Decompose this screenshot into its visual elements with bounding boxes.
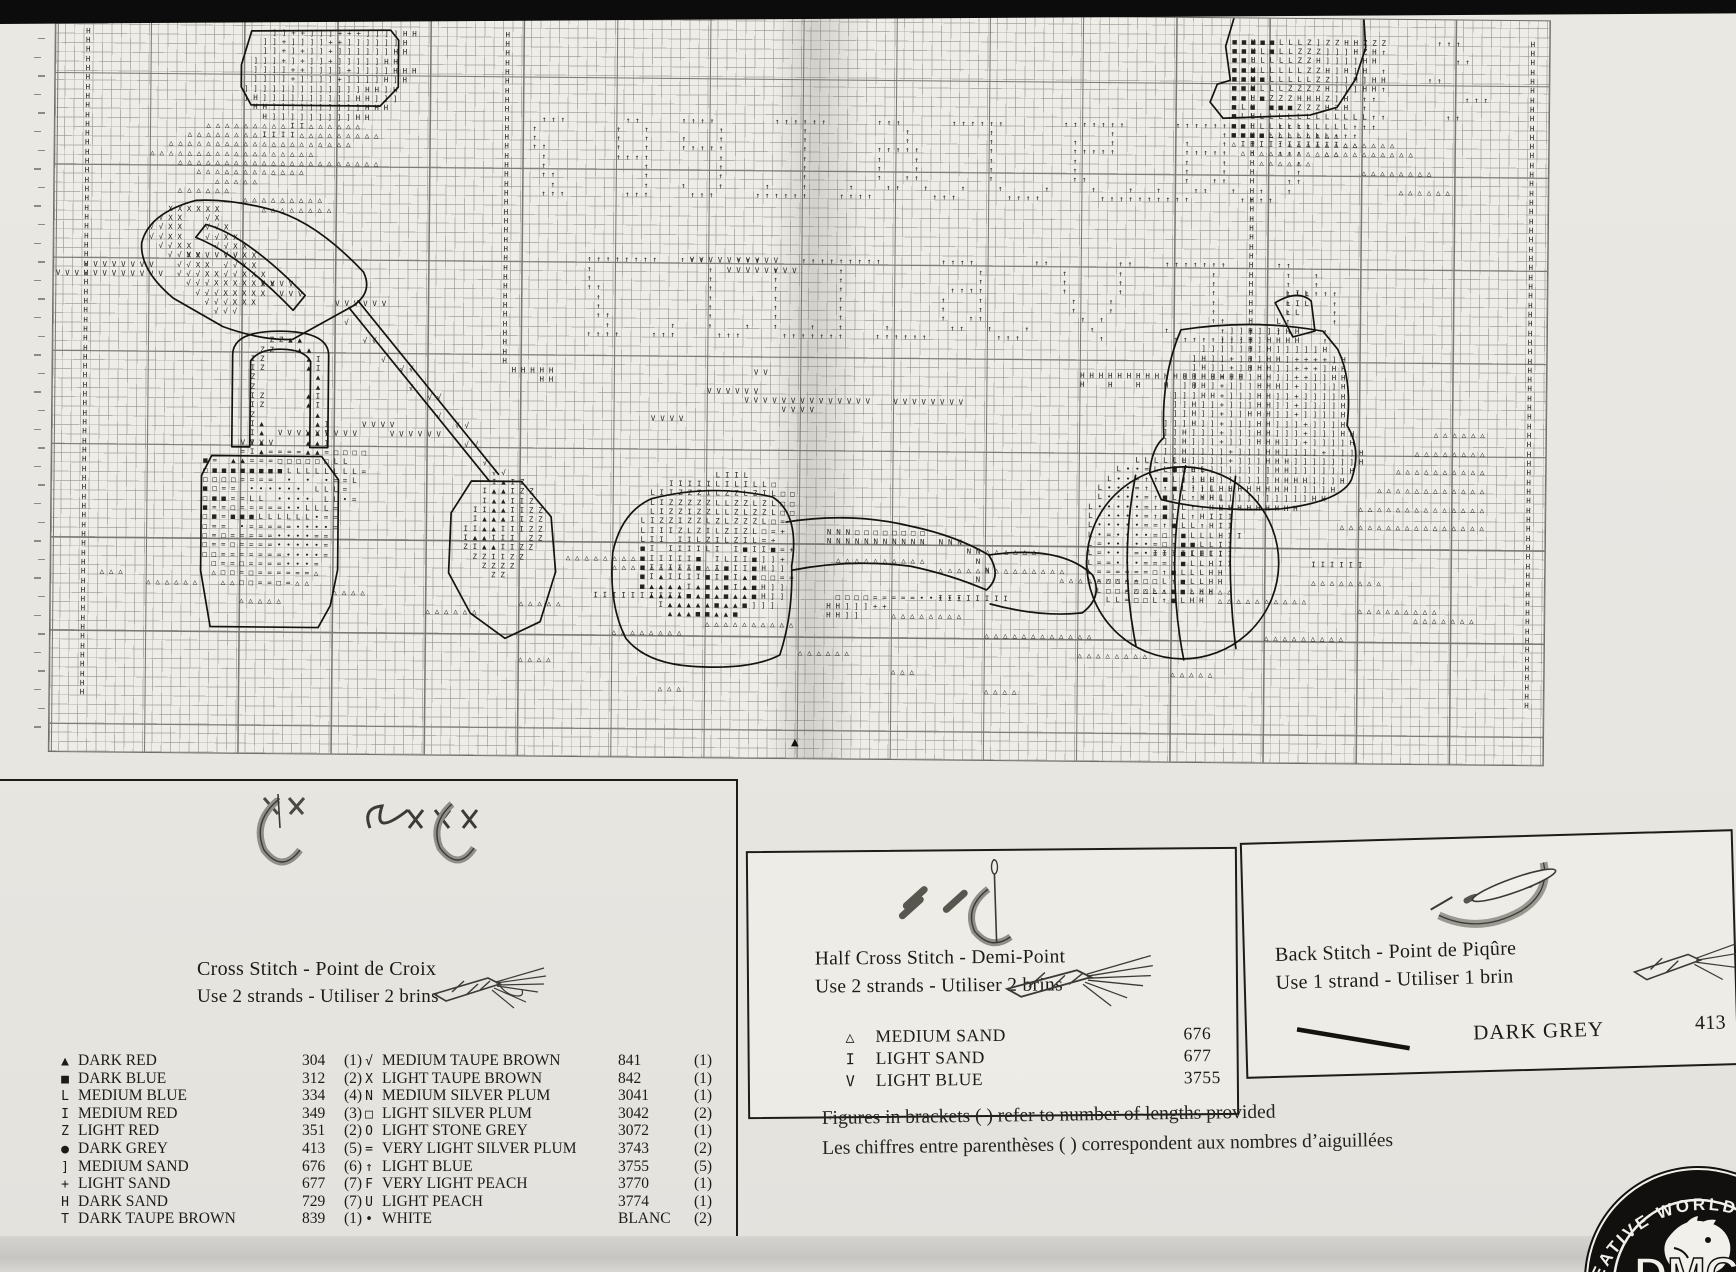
color-code: BLANC [618,1210,671,1228]
color-symbol: F [356,1177,382,1192]
color-name: VERY LIGHT SILVER PLUM [382,1140,576,1158]
color-code: 841 [618,1052,641,1070]
color-key-row: FVERY LIGHT PEACH3770(1) [356,1175,528,1193]
color-count: (2) [694,1140,712,1158]
color-name: DARK TAUPE BROWN [78,1210,236,1228]
color-name: MEDIUM RED [78,1105,177,1123]
color-symbol: Z [52,1124,78,1139]
color-code: 3072 [618,1122,649,1140]
color-count: (2) [694,1210,712,1228]
cross-stitch-box-border-right [736,779,738,1272]
color-symbol: H [52,1195,78,1210]
color-symbol: △ [845,1028,875,1046]
color-symbol: N [356,1089,382,1104]
color-code: 3041 [618,1087,649,1105]
back-stitch-title: Back Stitch - Point de Piqûre [1275,937,1517,967]
color-name: MEDIUM BLUE [78,1087,187,1105]
color-code: 334 [302,1087,325,1105]
color-name: MEDIUM SAND [78,1158,189,1176]
color-name: LIGHT SAND [78,1175,170,1193]
color-symbol: ↑ [356,1160,382,1175]
color-name: LIGHT SAND [876,1047,985,1068]
color-key-row: ■DARK BLUE312(2) [52,1070,166,1088]
color-key-row: TDARK TAUPE BROWN839(1) [52,1210,236,1228]
center-marker-icon: ▲ [791,738,799,748]
scanned-pattern-page: ]]++]]]+++]]]]HH]]+]]]]++]]]]]]H]]+]+]]+… [0,0,1736,1272]
cross-stitch-box-border-top [0,779,738,781]
color-code: 842 [618,1070,641,1088]
half-cross-color-row: △MEDIUM SAND676 [845,1025,1006,1047]
color-code: 729 [302,1193,325,1211]
floss-skein-icon [430,966,550,1028]
color-name: LIGHT SILVER PLUM [382,1105,532,1123]
bracket-notes: Figures in brackets ( ) refer to number … [822,1100,1394,1168]
color-code: 677 [302,1175,325,1193]
color-symbol: I [846,1050,876,1068]
color-code: 676 [302,1158,325,1176]
color-key-row: •WHITEBLANC(2) [356,1210,432,1228]
color-key-row: ULIGHT PEACH3774(1) [356,1193,483,1211]
half-cross-color-row: VLIGHT BLUE3755 [846,1069,983,1091]
color-code: 3755 [618,1158,649,1176]
color-count: (1) [694,1193,712,1211]
color-symbol: ] [52,1160,78,1175]
color-key-row: =VERY LIGHT SILVER PLUM3743(2) [356,1140,576,1158]
color-code: 3770 [618,1175,649,1193]
color-symbol: ● [52,1142,78,1157]
color-symbol: O [356,1124,382,1139]
color-name: VERY LIGHT PEACH [382,1175,528,1193]
color-code: 3042 [618,1105,649,1123]
backstitch-layer [49,7,1547,759]
color-name: DARK RED [78,1052,157,1070]
half-cross-needle-icon [898,857,1049,950]
color-code: 349 [302,1105,325,1123]
color-symbol: T [52,1212,78,1227]
color-key-row: XLIGHT TAUPE BROWN842(1) [356,1070,542,1088]
back-stitch-box: Back Stitch - Point de Piqûre Use 1 stra… [1240,829,1736,1079]
color-key-row: OLIGHT STONE GREY3072(1) [356,1122,528,1140]
color-key-row: ▲DARK RED304(1) [52,1052,157,1070]
color-key-row: NMEDIUM SILVER PLUM3041(1) [356,1087,550,1105]
color-code: 676 [1183,1023,1211,1044]
color-symbol: L [52,1089,78,1104]
color-symbol: • [356,1212,382,1227]
color-name: MEDIUM SAND [875,1025,1006,1046]
color-symbol: ▲ [52,1054,78,1069]
color-key-row: ●DARK GREY413(5) [52,1140,168,1158]
back-stitch-color-name: DARK GREY [1473,1017,1605,1046]
color-name: LIGHT PEACH [382,1193,483,1211]
color-symbol: I [52,1107,78,1122]
color-key-row: +LIGHT SAND677(7) [52,1175,170,1193]
color-key-row: IMEDIUM RED349(3) [52,1105,177,1123]
color-key-row: □LIGHT SILVER PLUM3042(2) [356,1105,532,1123]
cross-stitch-chart: ]]++]]]+++]]]]HH]]+]]]]++]]]]]]H]]+]+]]+… [48,6,1551,766]
color-name: DARK BLUE [78,1070,166,1088]
color-name: MEDIUM SILVER PLUM [382,1087,550,1105]
color-key-row: √MEDIUM TAUPE BROWN841(1) [356,1052,560,1070]
color-code: 3755 [1184,1067,1221,1088]
color-name: MEDIUM TAUPE BROWN [382,1052,560,1070]
color-code: 413 [302,1140,325,1158]
cross-stitch-title: Cross Stitch - Point de Croix [197,958,436,981]
floss-skein-icon [999,952,1160,1021]
scanner-edge-strip [0,1236,1736,1272]
color-symbol: X [356,1072,382,1087]
floss-skein-icon [1630,939,1736,1012]
dmc-logo: CREATIVE WORLD DMC [1556,1152,1736,1272]
color-name: LIGHT RED [78,1122,159,1140]
color-code: 312 [302,1070,325,1088]
color-symbol: = [356,1142,382,1157]
color-symbol: √ [356,1054,382,1069]
color-name: LIGHT TAUPE BROWN [382,1070,542,1088]
color-symbol: □ [356,1107,382,1122]
color-code: 351 [302,1122,325,1140]
color-name: LIGHT BLUE [876,1069,983,1090]
color-name: LIGHT BLUE [382,1158,473,1176]
half-cross-stitch-box: Half Cross Stitch - Demi-Point Use 2 str… [746,847,1239,1119]
color-code: 304 [302,1052,325,1070]
color-key-row: HDARK SAND729(7) [52,1193,168,1211]
color-code: 3743 [618,1140,649,1158]
color-symbol: ■ [52,1072,78,1087]
color-count: (1) [694,1122,712,1140]
dmc-logo-text: DMC [1634,1248,1736,1272]
back-stitch-color-code: 413 [1695,1011,1727,1035]
back-stitch-subtitle: Use 1 strand - Utiliser 1 brin [1275,965,1513,995]
color-code: 677 [1184,1045,1212,1066]
color-symbol: V [846,1072,876,1090]
color-count: (1) [694,1052,712,1070]
back-stitch-line-sample [1291,1018,1422,1058]
color-count: (1) [694,1087,712,1105]
bracket-note-fr: Les chiffres entre parenthèses ( ) corre… [822,1130,1393,1160]
color-count: (1) [694,1070,712,1088]
back-stitch-needle-icon [1427,839,1600,942]
color-code: 839 [302,1210,325,1228]
color-name: DARK SAND [78,1193,168,1211]
color-count: (1) [694,1175,712,1193]
color-key-row: ZLIGHT RED351(2) [52,1122,159,1140]
color-key-row: ↑LIGHT BLUE3755(5) [356,1158,473,1176]
color-symbol: U [356,1195,382,1210]
cross-stitch-subtitle: Use 2 strands - Utiliser 2 brins [197,986,439,1008]
row-tick-marks [34,30,50,740]
color-count: (5) [694,1158,712,1176]
color-name: DARK GREY [78,1140,168,1158]
color-name: LIGHT STONE GREY [382,1122,528,1140]
color-code: 3774 [618,1193,649,1211]
color-key-row: ]MEDIUM SAND676(6) [52,1158,189,1176]
half-cross-color-row: ILIGHT SAND677 [846,1047,985,1069]
cross-stitch-needle-icon [222,788,522,888]
color-name: WHITE [382,1210,432,1228]
half-cross-color-list: △MEDIUM SAND676ILIGHT SAND677VLIGHT BLUE… [748,849,1235,853]
color-count: (2) [694,1105,712,1123]
color-key-row: LMEDIUM BLUE334(4) [52,1087,187,1105]
color-symbol: + [52,1177,78,1192]
